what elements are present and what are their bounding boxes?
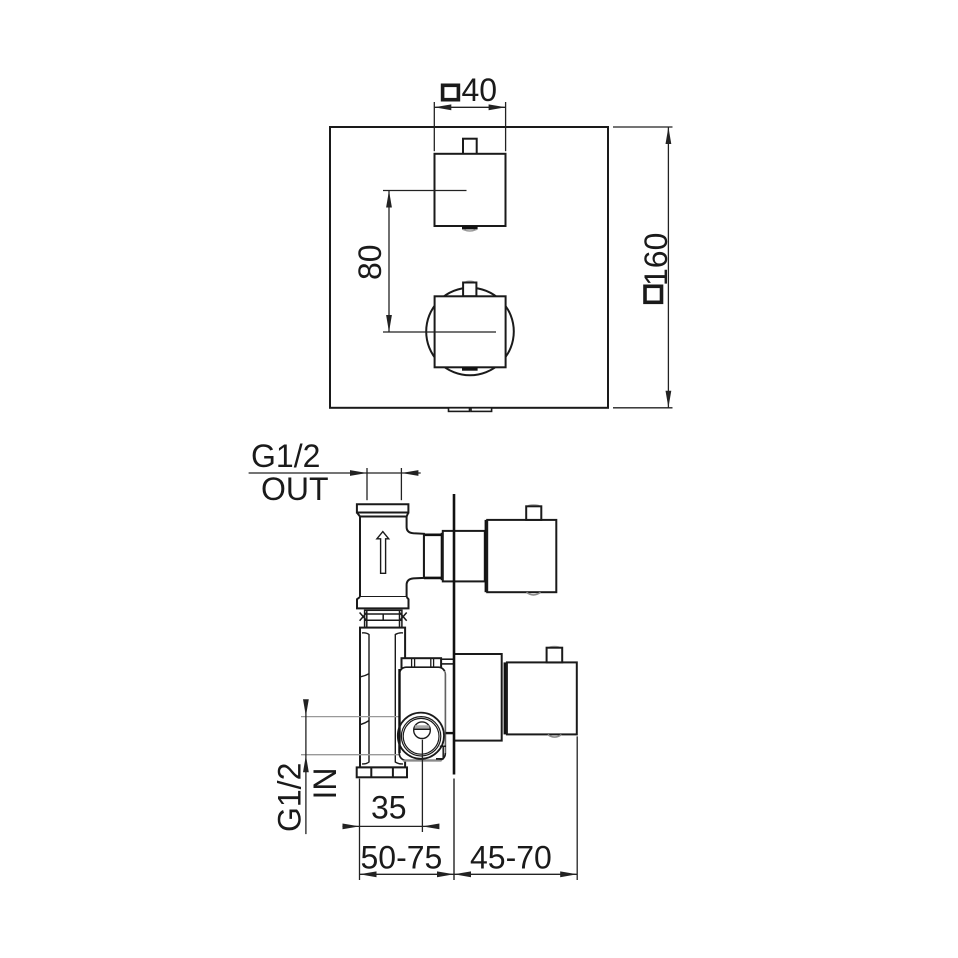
svg-text:40: 40 [462, 72, 498, 108]
svg-text:G1/2: G1/2 [272, 763, 308, 832]
svg-text:45-70: 45-70 [470, 840, 552, 876]
svg-text:80: 80 [352, 244, 388, 280]
svg-text:IN: IN [307, 768, 343, 800]
svg-text:35: 35 [371, 790, 407, 826]
svg-text:OUT: OUT [261, 471, 329, 507]
svg-text:G1/2: G1/2 [251, 438, 320, 474]
svg-text:50-75: 50-75 [361, 840, 443, 876]
